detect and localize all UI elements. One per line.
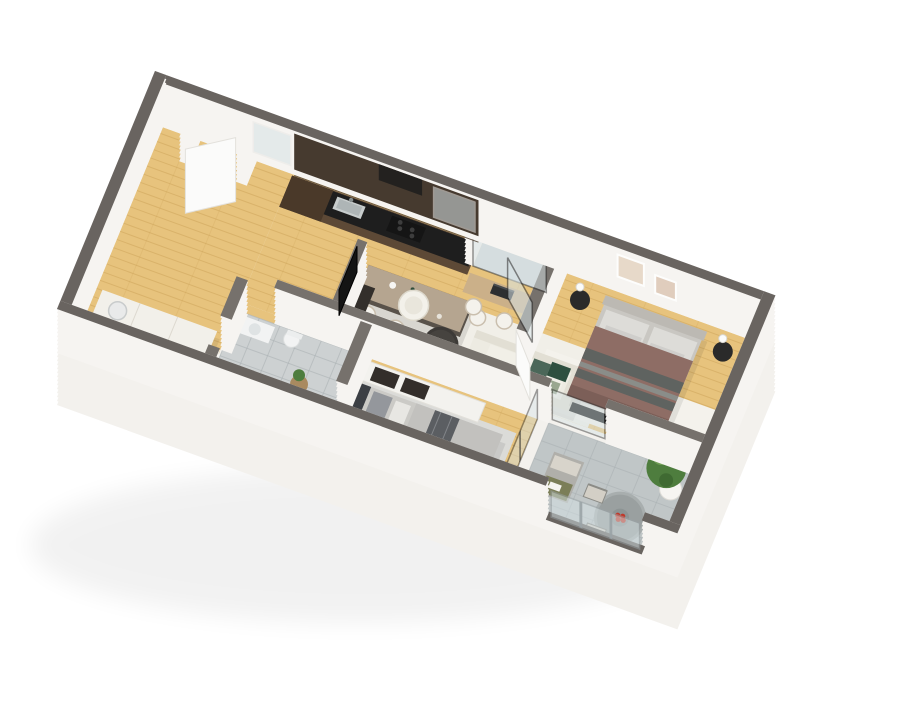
- balustrade-post: [610, 512, 613, 539]
- entry-door: [185, 138, 235, 214]
- vanity-sink: [249, 323, 261, 335]
- island-bowl: [437, 314, 442, 319]
- apartment-3d-floorplan: [0, 0, 922, 720]
- nightstand: [570, 290, 590, 310]
- kitchen-faucet: [349, 198, 353, 202]
- glass-partition-mullion: [520, 430, 521, 463]
- cooktop-burner: [397, 226, 402, 231]
- table-lamp: [719, 335, 727, 343]
- balustrade-post: [579, 501, 582, 528]
- cooktop-burner: [410, 234, 415, 239]
- island-plate: [389, 282, 396, 289]
- plant-leaf: [659, 473, 673, 487]
- washer: [109, 302, 127, 320]
- desk-stool: [466, 299, 482, 315]
- floorplan-svg: [0, 0, 922, 720]
- cooktop-burner: [410, 228, 415, 233]
- table-lamp: [576, 283, 584, 291]
- plant-table-plant: [293, 369, 305, 381]
- nightstand: [713, 342, 733, 362]
- desk-stool: [496, 313, 512, 329]
- armchair-seat: [405, 296, 423, 314]
- cooktop-burner: [398, 220, 403, 225]
